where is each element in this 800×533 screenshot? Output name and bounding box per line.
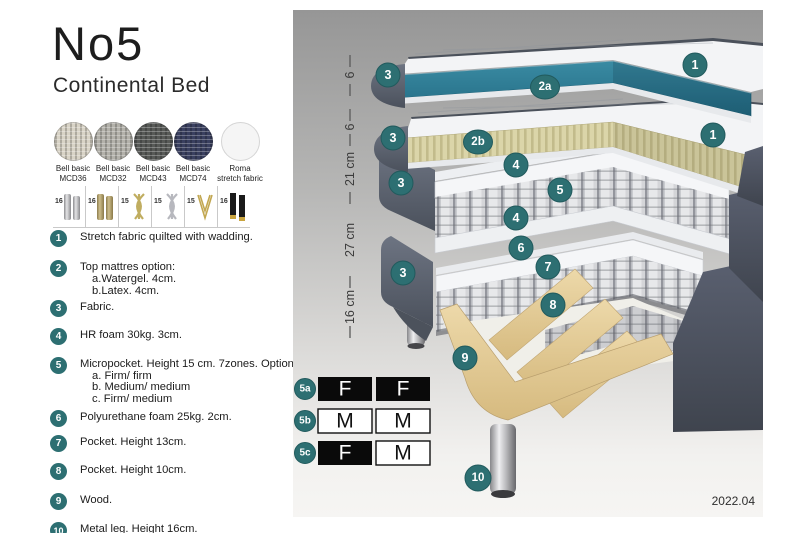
page-title: No5 xyxy=(52,20,144,67)
leg-height: 15 xyxy=(187,198,195,205)
leg-option: 15 xyxy=(184,186,217,228)
legend-item: 5 Micropocket. Height 15 cm. 7zones. Opt… xyxy=(50,357,300,407)
swatch-label: Bell basic xyxy=(136,164,170,173)
legend-subitem: b.Latex. 4cm. xyxy=(80,286,176,298)
legend-item: 8 Pocket. Height 10cm. xyxy=(50,463,300,480)
legend-number-badge: 3 xyxy=(50,300,67,317)
firmness-letter: M xyxy=(336,410,354,433)
firmness-letter: F xyxy=(339,378,352,401)
badge-8: 8 xyxy=(550,298,557,312)
legend-item: 6 Polyurethane foam 25kg. 2cm. xyxy=(50,410,300,427)
swatch-label: Bell basic xyxy=(56,164,90,173)
badge-9: 9 xyxy=(462,351,469,365)
version-label: 2022.04 xyxy=(712,494,756,508)
page-subtitle: Continental Bed xyxy=(53,74,210,98)
badge-5b: 5b xyxy=(299,416,311,427)
legend-item: 1 Stretch fabric quilted with wadding. xyxy=(50,230,300,247)
legend-number-badge: 8 xyxy=(50,463,67,480)
fabric-swatch: Bell basicMCD43 xyxy=(133,122,173,183)
legend-text: Stretch fabric quilted with wadding. xyxy=(80,230,253,244)
firmness-letter: M xyxy=(394,442,412,465)
legend-subitem: c. Firm/ medium xyxy=(80,394,297,406)
ruler-label: 6 xyxy=(343,123,357,130)
badge-2b: 2b xyxy=(471,136,484,148)
legend-number-badge: 2 xyxy=(50,260,67,277)
legend-item: 2 Top mattres option: a.Watergel. 4cm. b… xyxy=(50,260,300,298)
leg-height: 16 xyxy=(88,198,96,205)
leg-icon-cross-silver xyxy=(162,191,182,222)
leg-option: 16 xyxy=(53,186,85,228)
ruler-label: 6 xyxy=(343,71,357,78)
firmness-letter: F xyxy=(339,442,352,465)
leg-option: 15 xyxy=(151,186,184,228)
infographic-page: { "header": {"title": "No5", "subtitle":… xyxy=(0,0,800,533)
badge-3: 3 xyxy=(398,176,405,190)
legend-number-badge: 6 xyxy=(50,410,67,427)
legend-text: Polyurethane foam 25kg. 2cm. xyxy=(80,410,232,424)
fabric-swatch-icon xyxy=(54,122,93,161)
fabric-swatch: Romastretch fabric xyxy=(213,122,267,183)
swatch-label: Bell basic xyxy=(96,164,130,173)
bed-diagram-panel: 6 6 21 cm 27 cm 16 cm xyxy=(293,10,763,517)
lower-box-layer xyxy=(381,232,763,498)
legend-number-badge: 1 xyxy=(50,230,67,247)
badge-3: 3 xyxy=(400,266,407,280)
legend-item: 9 Wood. xyxy=(50,493,300,510)
legend-list: 1 Stretch fabric quilted with wadding. 2… xyxy=(50,230,300,533)
legend-number-badge: 7 xyxy=(50,435,67,452)
badge-5: 5 xyxy=(557,183,564,197)
fabric-swatch: Bell basicMCD32 xyxy=(93,122,133,183)
ruler-label: 27 cm xyxy=(343,223,357,257)
badge-6: 6 xyxy=(518,241,525,255)
leg-icon-cross-gold xyxy=(129,191,149,222)
firmness-letter: M xyxy=(394,410,412,433)
leg-icon-black-gold xyxy=(228,191,248,222)
fabric-swatches: Bell basicMCD36 Bell basicMCD32 Bell bas… xyxy=(53,122,267,183)
legend-text: HR foam 30kg. 3cm. xyxy=(80,328,182,342)
legend-text: Fabric. xyxy=(80,300,114,314)
badge-5c: 5c xyxy=(299,448,311,459)
legend-text: Pocket. Height 10cm. xyxy=(80,463,186,477)
fabric-swatch: Bell basicMCD74 xyxy=(173,122,213,183)
ruler-label: 21 cm xyxy=(343,152,357,186)
bed-cutaway-diagram: 6 6 21 cm 27 cm 16 cm xyxy=(293,10,763,517)
badge-4: 4 xyxy=(513,158,520,172)
leg-height: 16 xyxy=(220,198,228,205)
legend-number-badge: 4 xyxy=(50,328,67,345)
legend-text: Micropocket. Height 15 cm. 7zones. Optio… xyxy=(80,358,297,370)
fabric-swatch-icon xyxy=(134,122,173,161)
leg-option: 16 xyxy=(85,186,118,228)
legend-text: Wood. xyxy=(80,493,112,507)
leg-options: 16 16 15 15 15 xyxy=(53,186,250,228)
leg-icon-cylinder-silver xyxy=(63,191,83,222)
swatch-label: Roma xyxy=(229,164,250,173)
leg-icon-cylinder-gold xyxy=(96,191,116,222)
legend-number-badge: 9 xyxy=(50,493,67,510)
badge-3: 3 xyxy=(390,131,397,145)
ruler-label: 16 cm xyxy=(343,290,357,324)
legend-item: 3 Fabric. xyxy=(50,300,300,317)
badge-7: 7 xyxy=(545,260,552,274)
fabric-swatch: Bell basicMCD36 xyxy=(53,122,93,183)
legend-item: 7 Pocket. Height 13cm. xyxy=(50,435,300,452)
fabric-swatch-icon xyxy=(94,122,133,161)
swatch-label: Bell basic xyxy=(176,164,210,173)
legend-number-badge: 10 xyxy=(50,522,67,533)
leg-icon-hairpin-gold xyxy=(195,191,215,222)
badge-10: 10 xyxy=(472,472,485,484)
firmness-table: F F M M F M 5a 5b 5c xyxy=(295,377,431,465)
badge-1: 1 xyxy=(692,58,699,72)
legend-text: Top mattres option: xyxy=(80,261,175,273)
legend-text: Pocket. Height 13cm. xyxy=(80,435,186,449)
fabric-swatch-icon xyxy=(221,122,260,161)
leg-option: 15 xyxy=(118,186,151,228)
front-metal-leg xyxy=(490,424,516,494)
legend-item: 4 HR foam 30kg. 3cm. xyxy=(50,328,300,345)
firmness-letter: F xyxy=(397,378,410,401)
leg-height: 15 xyxy=(121,198,129,205)
legend-number-badge: 5 xyxy=(50,357,67,374)
badge-4: 4 xyxy=(513,211,520,225)
legend-item: 10 Metal leg. Height 16cm. xyxy=(50,522,300,533)
badge-1: 1 xyxy=(710,128,717,142)
leg-height: 15 xyxy=(154,198,162,205)
fabric-swatch-icon xyxy=(174,122,213,161)
legend-text: Metal leg. Height 16cm. xyxy=(80,522,198,533)
leg-height: 16 xyxy=(55,198,63,205)
badge-3: 3 xyxy=(385,68,392,82)
badge-5a: 5a xyxy=(299,384,311,395)
badge-2a: 2a xyxy=(539,81,552,93)
legend-subitem: a.Watergel. 4cm. xyxy=(80,274,176,286)
leg-option: 16 xyxy=(217,186,250,228)
